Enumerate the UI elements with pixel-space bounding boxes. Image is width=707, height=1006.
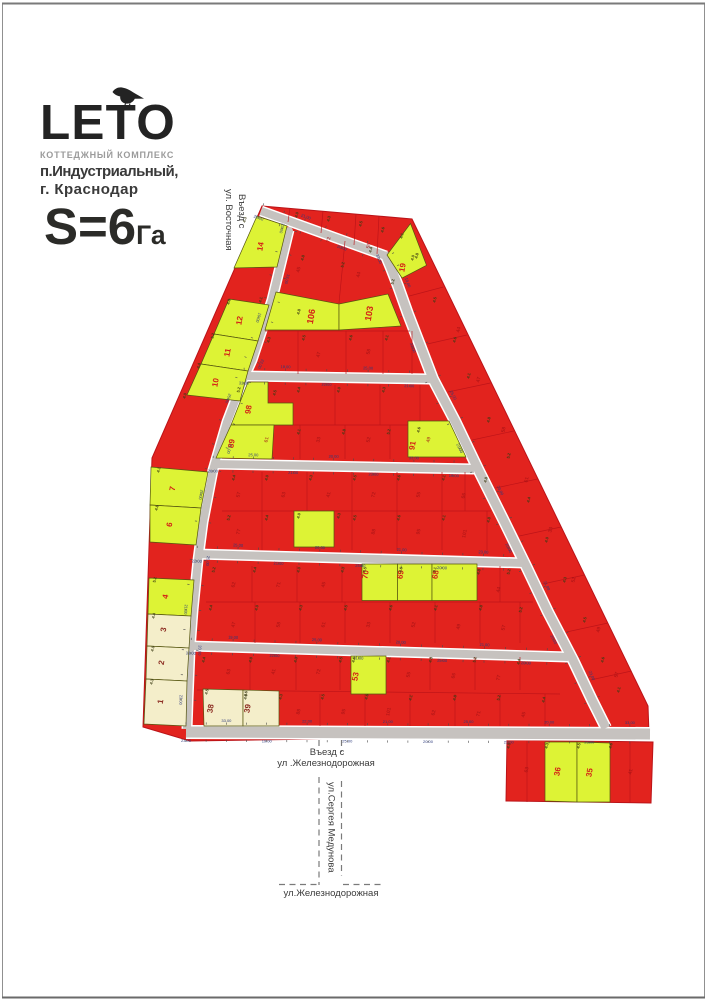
svg-text:33.00: 33.00: [239, 380, 250, 385]
svg-text:п.Индустриальный,: п.Индустриальный,: [40, 163, 178, 180]
svg-text:33.00: 33.00: [625, 720, 636, 725]
svg-text:23.00: 23.00: [584, 740, 595, 745]
svg-text:21.00: 21.00: [383, 719, 394, 724]
svg-text:22.00: 22.00: [321, 382, 332, 387]
svg-text:Въезд с: Въезд с: [236, 194, 247, 229]
svg-text:20.00: 20.00: [208, 468, 219, 473]
svg-text:20.00: 20.00: [396, 639, 407, 644]
svg-text:21.00: 21.00: [183, 604, 189, 615]
svg-text:21.00: 21.00: [288, 470, 299, 475]
svg-text:25.00: 25.00: [342, 739, 353, 744]
svg-text:г. Краснодар: г. Краснодар: [40, 181, 139, 198]
svg-text:23.00: 23.00: [181, 738, 192, 743]
svg-text:25.00: 25.00: [363, 365, 374, 370]
svg-text:Въезд с: Въезд с: [310, 747, 345, 758]
svg-text:20.00: 20.00: [423, 739, 434, 744]
svg-text:22.00: 22.00: [192, 558, 203, 563]
svg-text:ул.Железнодорожная: ул.Железнодорожная: [284, 888, 379, 899]
svg-text:23.00: 23.00: [478, 549, 489, 554]
svg-text:21.00: 21.00: [404, 383, 415, 388]
svg-text:21.00: 21.00: [273, 561, 284, 566]
svg-text:20.00: 20.00: [315, 545, 326, 550]
svg-text:20.00: 20.00: [197, 645, 202, 656]
svg-text:19.00: 19.00: [262, 738, 273, 743]
svg-text:21.00: 21.00: [397, 547, 408, 552]
svg-text:33.00: 33.00: [221, 718, 232, 723]
svg-text:25.00: 25.00: [463, 719, 474, 724]
svg-text:20.00: 20.00: [521, 660, 532, 665]
svg-text:21.00: 21.00: [479, 642, 490, 647]
svg-text:19.00: 19.00: [228, 635, 239, 640]
svg-text:ул. Восточная: ул. Восточная: [223, 189, 234, 251]
svg-text:20.00: 20.00: [437, 565, 448, 570]
svg-text:LETO: LETO: [40, 95, 176, 150]
svg-text:ул.Сергея Медунова: ул.Сергея Медунова: [326, 782, 337, 873]
svg-text:20.00: 20.00: [329, 454, 340, 459]
svg-text:25.00: 25.00: [233, 542, 244, 547]
svg-text:25.00: 25.00: [248, 452, 259, 457]
svg-text:23.00: 23.00: [178, 695, 183, 706]
svg-text:19.00: 19.00: [280, 364, 291, 369]
svg-text:25.00: 25.00: [437, 658, 448, 663]
svg-text:22.00: 22.00: [302, 719, 313, 724]
svg-text:23.00: 23.00: [368, 472, 379, 477]
svg-text:33.00: 33.00: [409, 455, 420, 460]
svg-text:22.00: 22.00: [269, 653, 280, 658]
svg-text:19.00: 19.00: [449, 473, 460, 478]
svg-text:КОТТЕДЖНЫЙ КОМПЛЕКС: КОТТЕДЖНЫЙ КОМПЛЕКС: [40, 149, 174, 160]
svg-text:20.00: 20.00: [544, 720, 555, 725]
svg-text:25.00: 25.00: [312, 637, 323, 642]
svg-text:ул .Железнодорожная: ул .Железнодорожная: [277, 758, 375, 769]
svg-text:33.00: 33.00: [186, 650, 197, 655]
